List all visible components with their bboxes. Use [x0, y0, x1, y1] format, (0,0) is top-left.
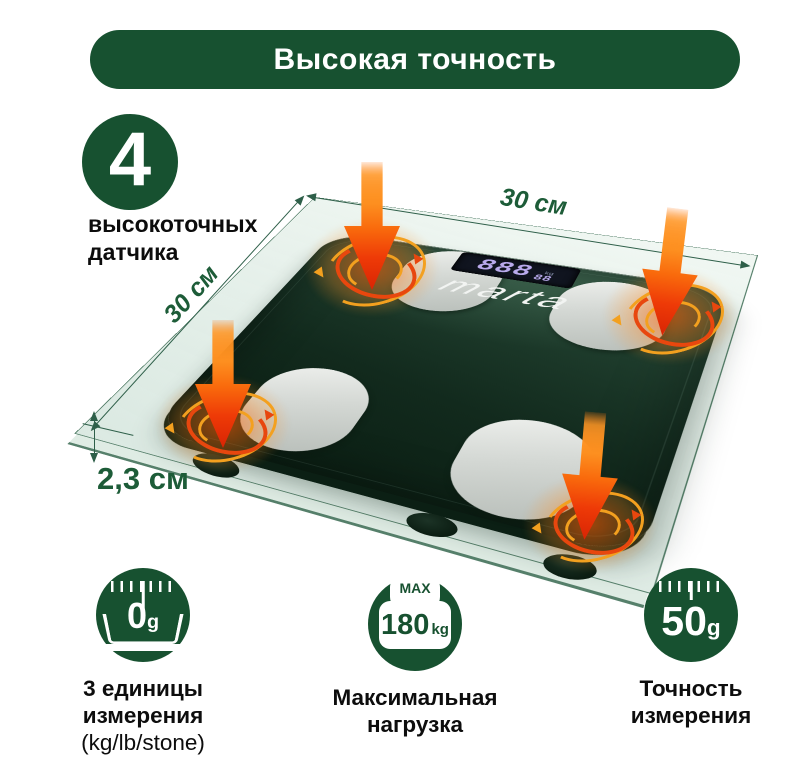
- precision-unit: g: [707, 615, 721, 640]
- precision-icon: 50g: [644, 568, 738, 662]
- arrowhead-icon: [90, 411, 98, 421]
- arrowhead-icon: [740, 260, 751, 269]
- feature-units-line2: измерения: [40, 702, 246, 729]
- dimension-line-height: [94, 413, 95, 461]
- lcd-side: kg 88: [531, 265, 557, 282]
- dimension-width-label: 30 см: [498, 183, 569, 222]
- scale-units-icon: 0g: [96, 568, 190, 662]
- feature-units-line3: (kg/lb/stone): [40, 729, 246, 756]
- arrowhead-icon: [305, 191, 316, 200]
- feature-max-line2: нагрузка: [312, 711, 518, 738]
- precision-value: 50: [661, 598, 707, 644]
- feature-max-load-label: Максимальная нагрузка: [312, 684, 518, 738]
- feature-precision-label: Точность измерения: [588, 675, 793, 729]
- feature-units: 0g 3 единицы измерения (kg/lb/stone): [40, 568, 246, 756]
- max-tag: MAX: [399, 580, 430, 596]
- product-infographic: Высокая точность 4 высокоточных датчика …: [0, 0, 793, 775]
- lcd-sub-digits: 88: [530, 274, 553, 283]
- feature-units-line1: 3 единицы: [40, 675, 246, 702]
- feature-precision-line1: Точность: [588, 675, 793, 702]
- max-load-icon: MAX 180 kg: [368, 577, 462, 671]
- feature-precision-line2: измерения: [588, 702, 793, 729]
- feature-max-load: MAX 180 kg Максимальная нагрузка: [312, 568, 518, 738]
- feature-max-line1: Максимальная: [312, 684, 518, 711]
- scale-bowl-icon: [102, 614, 183, 644]
- precision-icon-value: 50g: [644, 598, 738, 645]
- weight-body-icon: 180 kg: [379, 601, 451, 649]
- max-load-unit: kg: [431, 621, 449, 638]
- icon-stripe: [92, 644, 194, 651]
- feature-precision: 50g Точность измерения: [588, 568, 793, 729]
- feature-units-label: 3 единицы измерения (kg/lb/stone): [40, 675, 246, 756]
- max-load-value: 180: [381, 609, 429, 642]
